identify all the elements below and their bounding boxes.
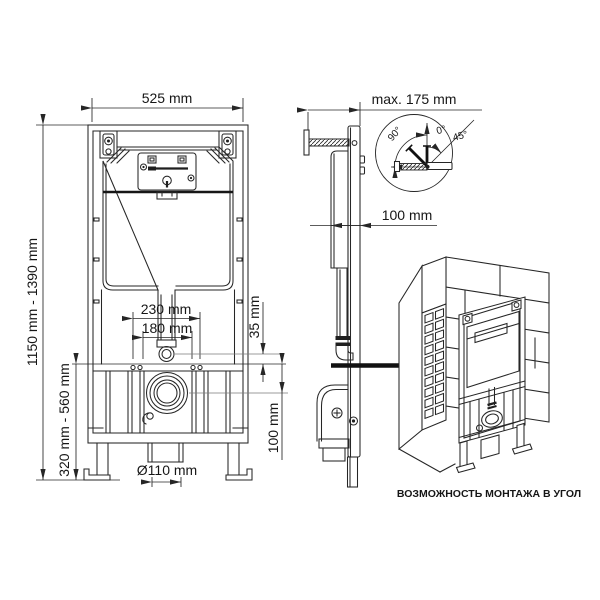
corner-view-caption: ВОЗМОЖНОСТЬ МОНТАЖА В УГОЛ [397, 488, 581, 500]
dim-frame-depth: 100 mm [310, 207, 437, 226]
technical-drawing-page: 525 mm 1150 mm - 1390 mm 320 mm - 560 mm [0, 0, 600, 600]
drain-clip-icon [147, 413, 153, 419]
dim-width: 525 mm [92, 90, 243, 122]
dim-drain-diameter-label: Ø110 mm [137, 462, 197, 478]
dim-flush-offset-label: 35 mm [246, 296, 262, 339]
front-frame [88, 125, 248, 443]
dim-foot-height-label: 320 mm - 560 mm [56, 363, 72, 477]
front-view: 525 mm 1150 mm - 1390 mm 320 mm - 560 mm [24, 90, 288, 487]
front-access-panel [138, 153, 196, 190]
dim-frame-depth-label: 100 mm [382, 207, 433, 223]
angle-detail: 90° 0° 45° [376, 115, 475, 192]
front-outlet [148, 443, 183, 462]
installation-frame-drawing: 525 mm 1150 mm - 1390 mm 320 mm - 560 mm [0, 0, 600, 600]
angle-0-label: 0° [435, 124, 447, 137]
angle-90-label: 90° [386, 125, 404, 144]
dim-fixing-inner-label: 180 mm [142, 320, 193, 336]
corner-frame [457, 297, 533, 473]
side-leg [348, 457, 358, 487]
front-drain [143, 373, 188, 425]
corner-block-wall-side [399, 266, 422, 449]
dim-max-depth-label: max. 175 mm [372, 91, 457, 107]
corner-view: ВОЗМОЖНОСТЬ МОНТАЖА В УГОЛ [397, 257, 581, 500]
dim-height-label: 1150 mm - 1390 mm [24, 238, 40, 366]
side-frame-rail [348, 126, 360, 457]
dim-drain-diameter: Ø110 mm [137, 462, 197, 487]
angle-45-label: 45° [452, 129, 469, 144]
dim-fixing-outer-label: 230 mm [141, 301, 192, 317]
side-drain-elbow [317, 385, 358, 461]
dim-drain-offset-label: 100 mm [265, 403, 281, 454]
dim-max-depth: max. 175 mm [308, 91, 482, 130]
dim-width-label: 525 mm [142, 90, 193, 106]
